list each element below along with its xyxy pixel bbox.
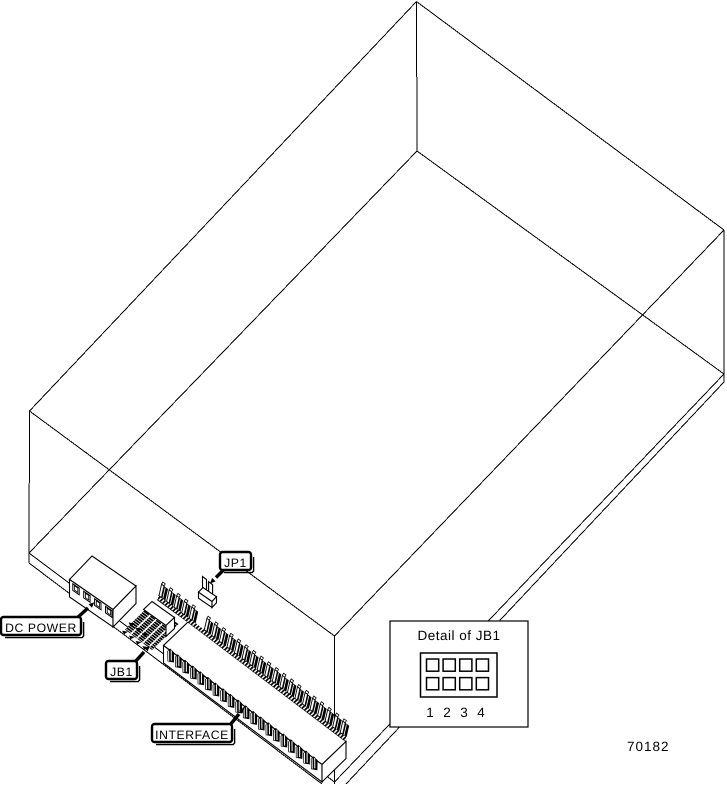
svg-text:1: 1 [426, 705, 434, 720]
svg-text:4: 4 [477, 705, 485, 720]
svg-text:DC POWER: DC POWER [5, 621, 77, 635]
svg-text:JB1: JB1 [110, 665, 133, 679]
svg-text:Detail of JB1: Detail of JB1 [417, 628, 500, 643]
svg-text:INTERFACE: INTERFACE [155, 728, 229, 742]
svg-text:3: 3 [460, 705, 468, 720]
svg-text:JP1: JP1 [224, 556, 247, 570]
svg-text:2: 2 [443, 705, 451, 720]
svg-text:70182: 70182 [627, 739, 670, 754]
